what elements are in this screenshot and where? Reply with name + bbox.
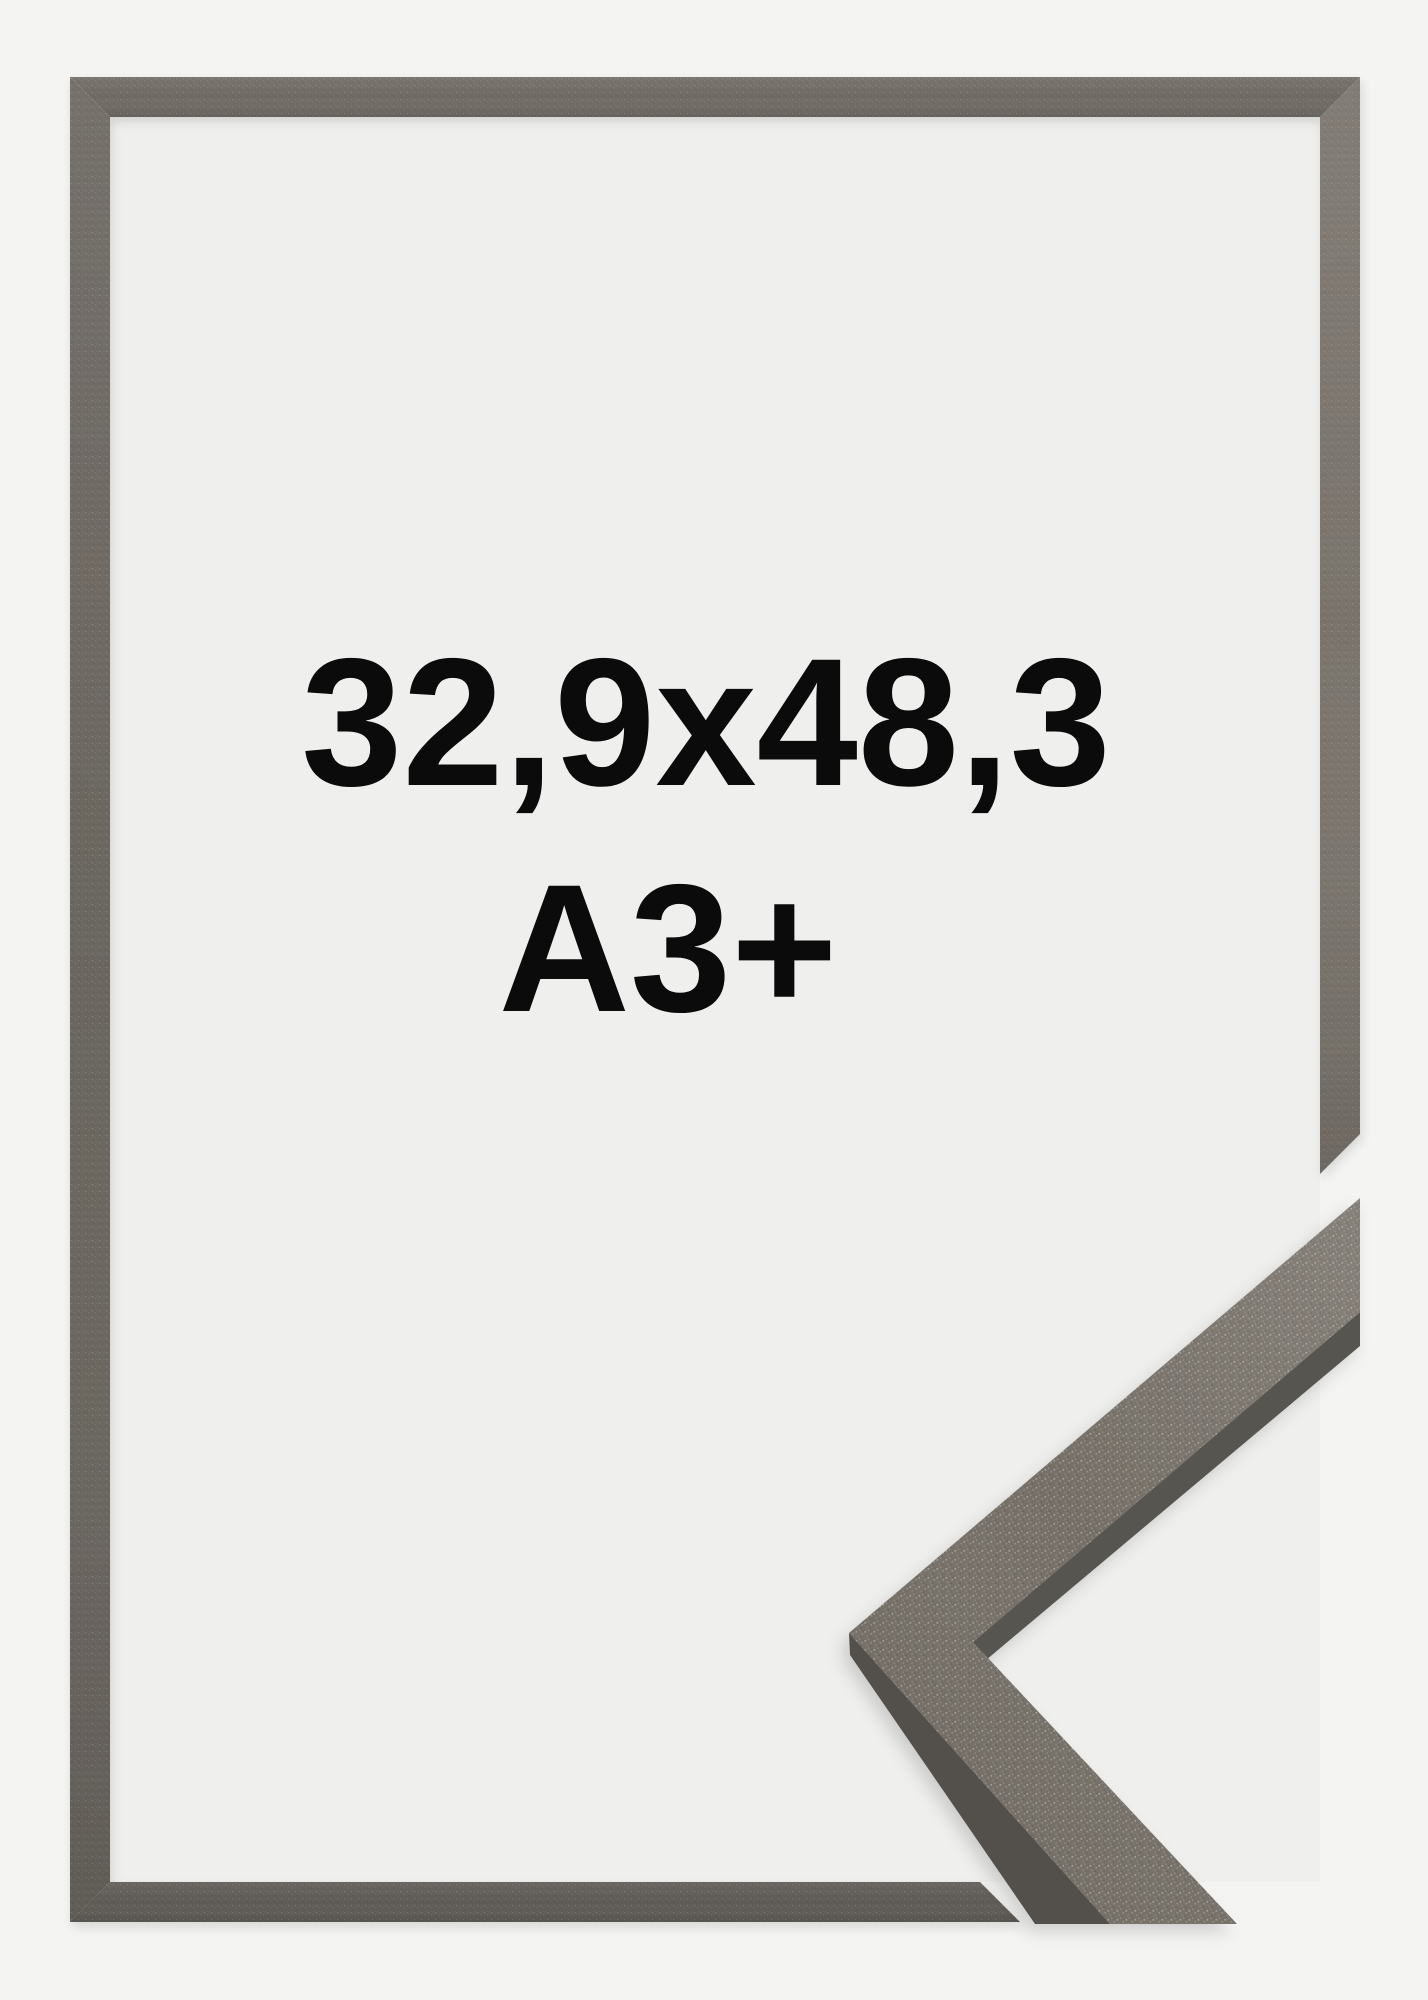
size-label: 32,9x48,3: [301, 631, 1111, 813]
frame-product-image: 32,9x48,3 A3+: [0, 0, 1428, 2000]
format-label: A3+: [499, 857, 838, 1039]
